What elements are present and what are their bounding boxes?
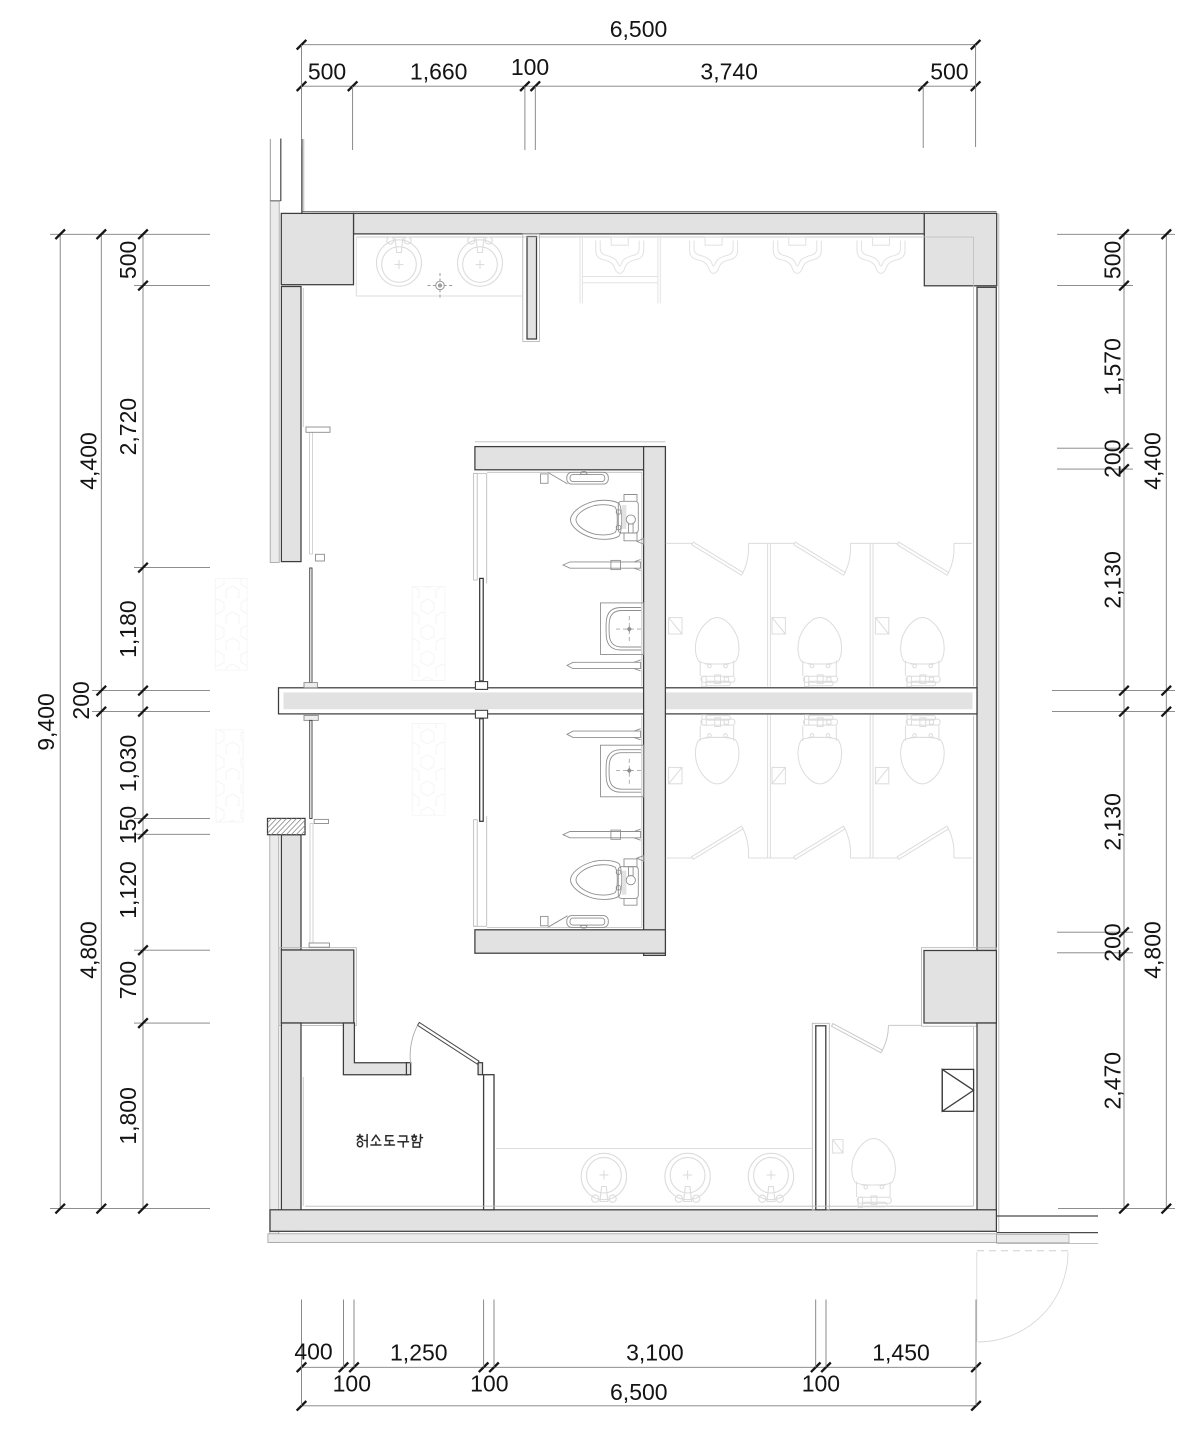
svg-text:6,500: 6,500 bbox=[610, 16, 668, 42]
svg-text:100: 100 bbox=[511, 54, 549, 80]
svg-text:500: 500 bbox=[1100, 241, 1126, 279]
svg-text:4,400: 4,400 bbox=[1140, 432, 1166, 490]
svg-text:400: 400 bbox=[294, 1339, 332, 1365]
svg-text:3,100: 3,100 bbox=[626, 1339, 684, 1365]
svg-text:2,130: 2,130 bbox=[1100, 551, 1126, 609]
svg-text:4,800: 4,800 bbox=[76, 921, 102, 979]
svg-text:9,400: 9,400 bbox=[33, 693, 59, 751]
svg-text:1,180: 1,180 bbox=[115, 600, 141, 658]
svg-text:200: 200 bbox=[1100, 440, 1126, 478]
svg-text:500: 500 bbox=[115, 241, 141, 279]
svg-text:2,720: 2,720 bbox=[115, 398, 141, 456]
svg-text:500: 500 bbox=[930, 59, 968, 85]
svg-text:1,660: 1,660 bbox=[410, 59, 468, 85]
svg-text:6,500: 6,500 bbox=[610, 1379, 668, 1405]
svg-text:200: 200 bbox=[1100, 923, 1126, 961]
svg-text:100: 100 bbox=[470, 1371, 508, 1397]
svg-text:1,570: 1,570 bbox=[1100, 338, 1126, 396]
svg-text:100: 100 bbox=[802, 1371, 840, 1397]
svg-text:1,250: 1,250 bbox=[390, 1339, 448, 1365]
svg-text:1,120: 1,120 bbox=[115, 861, 141, 919]
svg-text:4,400: 4,400 bbox=[76, 432, 102, 490]
svg-text:700: 700 bbox=[115, 961, 141, 999]
svg-text:1,800: 1,800 bbox=[115, 1087, 141, 1145]
svg-text:500: 500 bbox=[308, 59, 346, 85]
svg-text:2,130: 2,130 bbox=[1100, 793, 1126, 851]
svg-text:2,470: 2,470 bbox=[1100, 1052, 1126, 1110]
svg-text:100: 100 bbox=[333, 1371, 371, 1397]
svg-text:1,450: 1,450 bbox=[872, 1339, 930, 1365]
svg-text:1,030: 1,030 bbox=[115, 735, 141, 793]
svg-text:200: 200 bbox=[68, 681, 94, 719]
svg-text:150: 150 bbox=[115, 806, 141, 844]
svg-text:3,740: 3,740 bbox=[700, 59, 758, 85]
svg-text:4,800: 4,800 bbox=[1140, 921, 1166, 979]
